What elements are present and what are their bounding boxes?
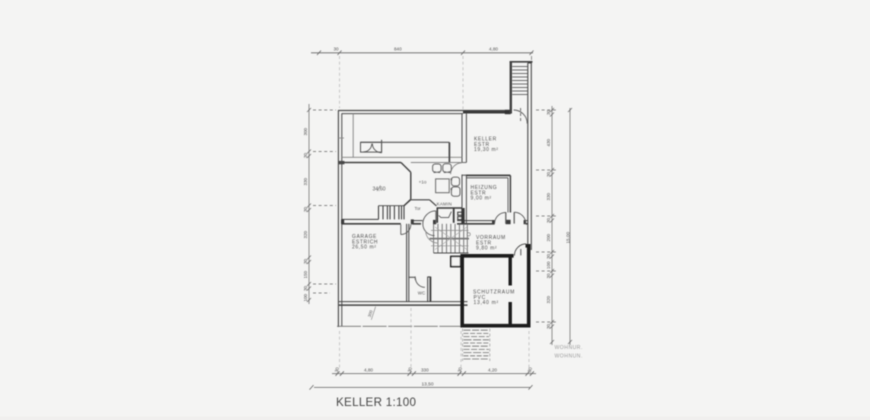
svg-text:320: 320: [303, 230, 308, 238]
svg-text:4,20: 4,20: [488, 368, 497, 373]
svg-text:13,50: 13,50: [422, 382, 434, 388]
svg-text:330: 330: [546, 192, 551, 200]
svg-text:4,80: 4,80: [489, 47, 498, 52]
svg-text:300: 300: [303, 127, 308, 135]
svg-text:15,00: 15,00: [566, 232, 571, 244]
svg-text:30: 30: [546, 253, 551, 259]
svg-text:WOHNUR.: WOHNUR.: [555, 345, 583, 351]
svg-text:KAMIN: KAMIN: [437, 201, 452, 206]
svg-text:30: 30: [303, 152, 308, 158]
svg-text:19,30 m²: 19,30 m²: [474, 147, 499, 153]
svg-text:320: 320: [546, 295, 551, 303]
svg-text:+1o: +1o: [419, 180, 427, 185]
svg-text:100: 100: [546, 261, 551, 269]
svg-text:9,00 m²: 9,00 m²: [471, 196, 492, 202]
svg-text:30: 30: [546, 273, 551, 279]
svg-text:330: 330: [303, 177, 308, 185]
svg-text:30: 30: [546, 109, 551, 115]
svg-text:WOHNUN.: WOHNUN.: [555, 354, 583, 360]
svg-text:WC: WC: [418, 291, 425, 296]
svg-text:30: 30: [546, 217, 551, 223]
svg-text:30: 30: [303, 206, 308, 212]
svg-text:13,40 m²: 13,40 m²: [474, 300, 499, 306]
svg-text:4,80: 4,80: [364, 368, 373, 373]
svg-text:30: 30: [546, 171, 551, 177]
svg-text:100: 100: [303, 293, 308, 301]
svg-text:30: 30: [334, 46, 340, 51]
svg-text:200: 200: [546, 233, 551, 241]
svg-text:330: 330: [421, 368, 429, 373]
svg-text:30: 30: [303, 285, 308, 291]
svg-text:KELLER 1:100: KELLER 1:100: [336, 396, 416, 409]
svg-text:30: 30: [546, 323, 551, 329]
svg-text:9,80 m²: 9,80 m²: [476, 246, 497, 252]
svg-text:840: 840: [394, 47, 402, 52]
svg-text:430: 430: [546, 138, 551, 146]
svg-text:30: 30: [303, 258, 308, 264]
svg-text:150: 150: [303, 270, 308, 278]
svg-text:26,50 m²: 26,50 m²: [352, 245, 377, 251]
svg-text:Tor: Tor: [415, 206, 422, 211]
